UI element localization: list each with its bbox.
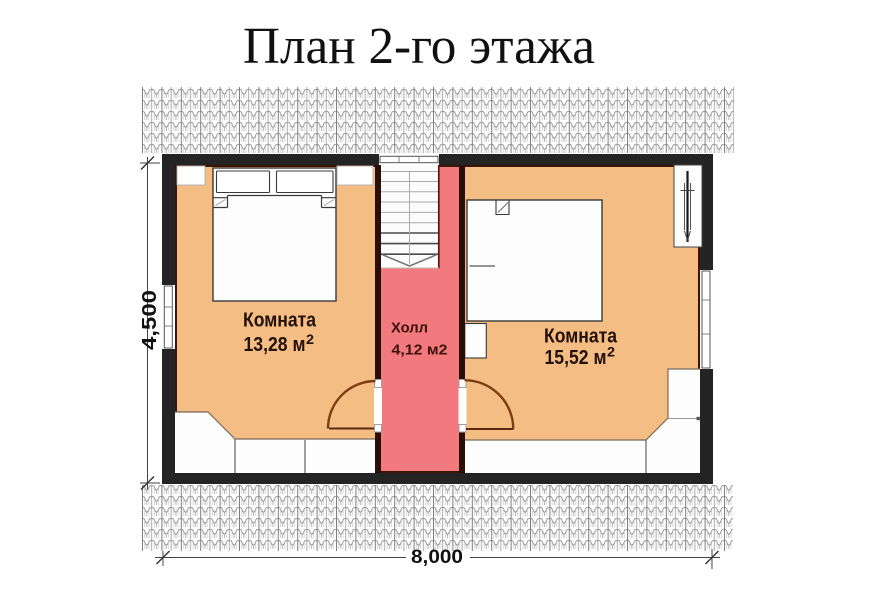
svg-text:4,500: 4,500 — [139, 290, 161, 350]
svg-text:4,12 м2: 4,12 м2 — [392, 342, 448, 359]
svg-text:План 2-го этажа: План 2-го этажа — [243, 18, 595, 75]
svg-text:8,000: 8,000 — [411, 546, 463, 568]
svg-text:13,28 м: 13,28 м — [244, 334, 306, 356]
svg-text:15,52 м: 15,52 м — [545, 347, 607, 369]
svg-text:Холл: Холл — [391, 319, 428, 336]
svg-text:2: 2 — [607, 345, 615, 360]
svg-text:2: 2 — [306, 332, 314, 347]
svg-text:Комната: Комната — [243, 310, 317, 332]
